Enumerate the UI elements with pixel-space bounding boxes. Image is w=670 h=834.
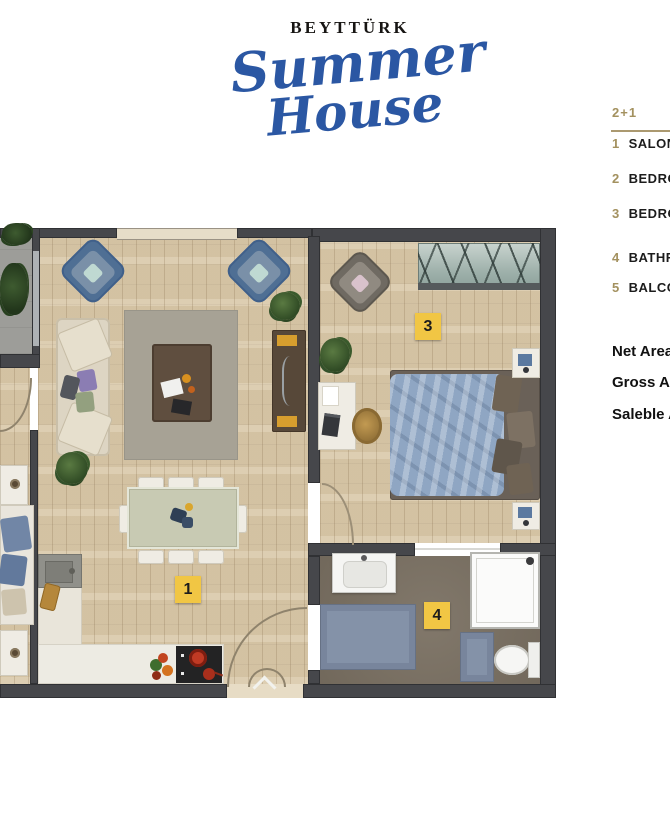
logo-script-house: House [253,77,457,144]
legend-room-5-number: 5 [612,280,625,295]
toilet [494,642,542,678]
vegetable-basket [148,651,176,681]
bedroom2-nightstand-bottom [0,630,28,676]
legend-room-4-name: BATHROOM [629,250,670,265]
salon-plant-floor-icon [56,452,88,484]
dining-chair-bottom-2 [168,550,194,564]
balcony-plant-top-icon [2,223,32,245]
dining-chair-bottom-1 [138,550,164,564]
bedroom3-bed [390,370,540,500]
legend-unit-type: 2+1 [612,105,637,120]
bedroom3-nightstand-top [512,348,540,378]
wall-top-salon-b [237,228,312,238]
bedroom3-plant-icon [320,338,350,372]
legend-room-bedroom-a: 2 BEDROOM [612,171,670,186]
bathroom-sink [332,553,396,593]
salon-plant-console-icon [270,292,300,320]
bed-blanket [390,374,504,496]
legend-room-2-name: BEDROOM [629,171,670,186]
legend-room-2-number: 2 [612,171,625,186]
dining-chair-bottom-3 [198,550,224,564]
wall-top-salon-a [33,228,117,238]
bath-sliding-door-line [415,548,500,550]
badge-bedroom3: 3 [415,313,441,340]
legend-room-1-name: SALON [629,136,670,151]
wardrobe [418,243,540,290]
net-area-label: Net Area [612,343,670,360]
stove [176,646,222,683]
balcony-plant-side-icon [0,263,28,315]
legend-room-3-name: BEDROOM [629,206,670,221]
legend: 2+1 1 SALON 2 BEDROOM 3 BEDROOM 4 BATHRO… [612,105,670,325]
wall-top-bedroom3 [312,228,556,242]
wall-bottom-left [0,684,227,698]
legend-room-bedroom-b: 3 BEDROOM [612,206,670,221]
gross-area-label: Gross Area [612,374,670,391]
legend-room-salon: 1 SALON [612,136,670,151]
legend-room-1-number: 1 [612,136,625,151]
bedroom2-bed [0,505,34,625]
legend-room-3-number: 3 [612,206,625,221]
flyer-page: { "logo": { "brand": "BEYTTÜRK", "script… [0,0,670,834]
area-summary: Net Area Gross Area Saleble Area [612,337,670,437]
bedroom2-nightstand-top [0,465,28,505]
badge-bathroom: 4 [424,602,450,629]
wall-bath-left-b [308,670,320,684]
wall-bottom-right [303,684,556,698]
bedroom3-stool [352,408,382,444]
bath-mat-small [460,632,494,682]
coffee-table [152,344,212,422]
salon-window [117,228,237,240]
dining-table [127,487,239,549]
floor-plan: 1 3 4 [0,223,560,700]
shower [470,552,540,629]
legend-divider [611,130,670,132]
sofa-pillow-green [75,391,95,413]
legend-room-bathroom: 4 BATHROOM [612,250,670,265]
balcony-glass-door [33,251,39,346]
bedroom3-nightstand-bottom [512,502,540,530]
wall-balcony-bottom [0,354,40,368]
bath-mat-large [320,604,416,670]
legend-room-balcony: 5 BALCONY [612,280,670,295]
logo: BEYTTÜRK Summer House [225,14,475,134]
saleble-area-label: Saleble Area [612,406,670,423]
badge-salon: 1 [175,576,201,603]
legend-room-4-number: 4 [612,250,625,265]
wall-right [540,228,556,698]
tv-console [272,330,306,432]
wall-bath-left-a [308,556,320,605]
sofa [56,318,110,456]
bedroom3-desk [318,382,356,450]
legend-room-5-name: BALCONY [629,280,670,295]
